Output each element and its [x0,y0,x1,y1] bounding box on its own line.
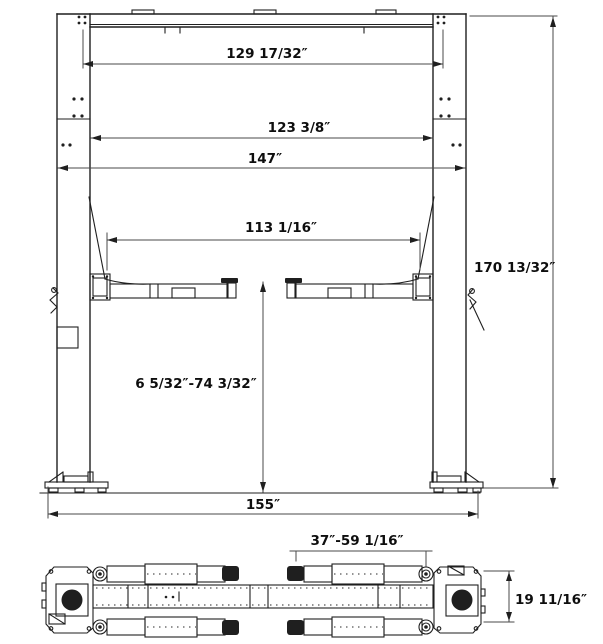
plan-arm-rear-left [93,617,239,637]
drawing-canvas: 129 17/32″ 123 3/8″ 147″ 113 1/16″ [0,0,603,644]
right-arm-pad [285,278,302,283]
plan-arm-rear-right [287,617,433,637]
dim-arm-reach: 37″-59 1/16″ [290,533,432,566]
dim-inner-span-label: 113 1/16″ [245,220,317,236]
right-post [433,14,466,482]
dim-base-width-label: 155″ [246,497,280,513]
dim-top-width: 129 17/32″ [83,30,443,68]
dim-between-columns-label: 123 3/8″ [268,120,331,136]
left-post [57,14,90,482]
left-arm [89,197,238,298]
dim-lift-range-label: 6 5/32″-74 3/32″ [135,376,256,392]
front-view: 129 17/32″ 123 3/8″ 147″ 113 1/16″ [40,10,558,518]
dim-arm-reach-label: 37″-59 1/16″ [310,533,403,549]
left-arm-pad [221,278,238,283]
plan-right-cylinder [452,590,473,611]
dim-lift-range: 6 5/32″-74 3/32″ [135,282,266,492]
lock-release-lever-right [468,289,484,330]
plan-view: 37″-59 1/16″ 19 11/16″ [42,533,587,637]
plan-pad [287,620,304,635]
left-arm-restraint [89,197,105,279]
dim-overall-width-label: 147″ [248,151,282,167]
right-carriage [413,274,433,300]
dim-track-depth-label: 19 11/16″ [515,592,587,608]
left-base-plate [45,472,108,492]
plan-left-base [42,567,93,633]
plan-pad [222,620,239,635]
plan-left-cylinder [62,590,83,611]
dim-overall-height-label: 170 13/32″ [474,260,555,276]
dim-overall-width: 147″ [58,151,465,171]
right-arm [285,197,434,298]
plan-arm-front-left [93,564,239,584]
dim-inner-span: 113 1/16″ [107,220,420,270]
left-carriage [90,274,110,300]
plan-right-base [434,566,485,633]
center-track [93,585,433,608]
dim-track-depth: 19 11/16″ [484,571,587,622]
lift-dimension-drawing: 129 17/32″ 123 3/8″ 147″ 113 1/16″ [0,0,603,644]
plan-arm-front-right [287,564,433,584]
dim-top-width-label: 129 17/32″ [226,46,307,62]
plan-pad [287,566,304,581]
plan-pad [222,566,239,581]
overhead-beam [57,10,466,33]
control-box [57,327,78,348]
right-base-plate [430,472,483,492]
dim-overall-height: 170 13/32″ [470,16,558,488]
dim-between-columns: 123 3/8″ [91,120,433,141]
